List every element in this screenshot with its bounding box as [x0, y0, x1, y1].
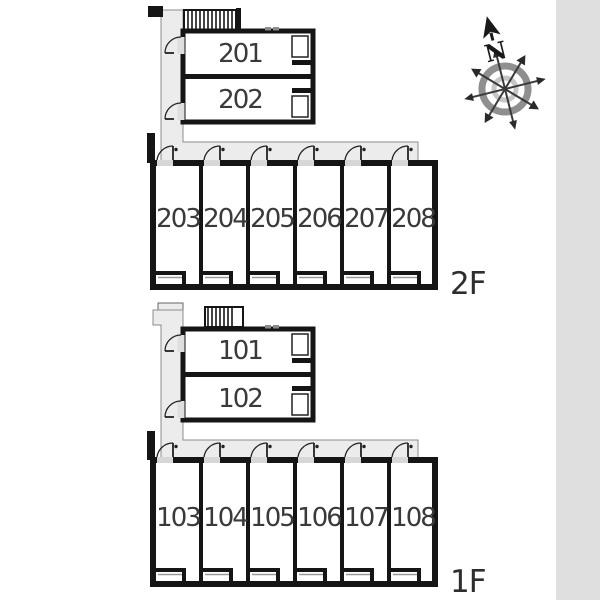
wall-cap: [147, 431, 155, 460]
room-label-203: 203: [156, 204, 200, 234]
room-label-104: 104: [203, 503, 248, 533]
room-label-102: 102: [218, 384, 262, 414]
floor-label-2f: 2F: [450, 266, 486, 302]
wall-cap: [148, 6, 163, 17]
floor-label-1f: 1F: [450, 564, 486, 600]
right-side-band: [556, 0, 600, 600]
floor-plan-svg: N 201 202 203 204 205 206: [0, 0, 600, 600]
stairs-hatch-icon: [205, 307, 243, 327]
room-label-101: 101: [218, 336, 262, 366]
room-label-106: 106: [297, 503, 341, 533]
floor-plan-canvas: N 201 202 203 204 205 206: [0, 0, 600, 600]
room-label-103: 103: [156, 503, 200, 533]
room-label-107: 107: [344, 503, 388, 533]
room-label-202: 202: [218, 85, 262, 115]
room-label-208: 208: [391, 204, 435, 234]
room-label-207: 207: [344, 204, 388, 234]
room-label-205: 205: [250, 204, 294, 234]
stairs-hatch-icon: [184, 8, 241, 31]
room-label-108: 108: [391, 503, 435, 533]
room-label-201: 201: [218, 39, 262, 69]
room-label-204: 204: [203, 204, 248, 234]
wall-cap: [147, 133, 155, 163]
room-label-206: 206: [297, 204, 341, 234]
room-label-105: 105: [250, 503, 294, 533]
